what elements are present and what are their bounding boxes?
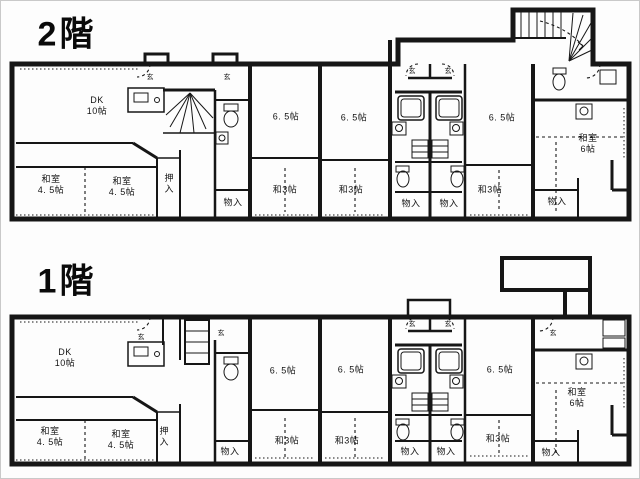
genkan-label-1f: 玄: [218, 330, 225, 338]
room-label-wa3-c-1f: 和3帖: [486, 434, 511, 445]
room-label-washitsu45-a-2f: 和室 4. 5帖: [38, 174, 65, 196]
storage-label-1f: 物入: [436, 447, 455, 458]
toilet-icon: [215, 340, 250, 464]
floorplan-image: 2階 DK 10帖 6. 5帖 6. 5帖 6. 5帖 和室 6帖 和室 4. …: [0, 0, 640, 479]
storage-label-1f: 物入: [400, 447, 419, 458]
storage-label-1f: 物入: [541, 448, 560, 459]
room-label-6.5-b-1f: 6. 5帖: [338, 365, 365, 376]
room-label-wa3-a-1f: 和3帖: [275, 436, 300, 447]
porch-canopy: [502, 258, 590, 317]
room-label-washitsu45-b-2f: 和室 4. 5帖: [109, 176, 136, 198]
genkan-label-2f: 玄: [147, 74, 154, 82]
genkan-label-1f: 玄: [409, 321, 416, 329]
storage-label-2f: 物入: [401, 199, 420, 210]
interior-stairs-icon: [163, 90, 215, 219]
room-label-dk-1f: DK 10帖: [55, 347, 76, 369]
interior-stairs-icon: [163, 317, 209, 364]
storage-label-2f: 物入: [439, 199, 458, 210]
balcony-icon: [145, 54, 168, 64]
closet-label-oshiire-1f: 押入: [159, 426, 168, 448]
genkan-label-1f: 玄: [445, 321, 452, 329]
genkan-label-2f: 玄: [409, 68, 416, 76]
genkan-label-1f: 玄: [138, 334, 145, 342]
room-label-washitsu45-a-1f: 和室 4. 5帖: [37, 426, 64, 448]
closet-label-oshiire-2f: 押入: [164, 173, 173, 195]
room-label-6.5-a-1f: 6. 5帖: [270, 366, 297, 377]
floor2-title: 2階: [38, 15, 97, 56]
genkan-label-1f: 玄: [550, 330, 557, 338]
room-label-6.5-c-2f: 6. 5帖: [489, 113, 516, 124]
floor1-linework: [12, 258, 629, 464]
kitchen-counter-icon: [128, 342, 164, 366]
kitchen-counter-icon: [128, 88, 164, 112]
room-label-6.5-b-2f: 6. 5帖: [341, 113, 368, 124]
room-label-washitsu6-1f: 和室 6帖: [567, 387, 586, 409]
right-unit-bathroom: [533, 317, 629, 369]
room-label-wa3-a-2f: 和3帖: [273, 185, 298, 196]
room-label-6.5-a-2f: 6. 5帖: [273, 112, 300, 123]
room-label-dk-2f: DK 10帖: [87, 95, 108, 117]
room-label-washitsu45-b-1f: 和室 4. 5帖: [108, 429, 135, 451]
genkan-label-2f: 玄: [445, 68, 452, 76]
storage-label-2f: 物入: [547, 197, 566, 208]
room-label-wa3-b-2f: 和3帖: [339, 185, 364, 196]
storage-label-1f: 物入: [220, 447, 239, 458]
bath-units: [392, 64, 464, 219]
floorplan-linework: [0, 0, 640, 479]
genkan-label-2f: 玄: [224, 74, 231, 82]
balcony-icon: [213, 54, 237, 64]
room-label-washitsu6-2f: 和室 6帖: [578, 133, 597, 155]
room-label-wa3-b-1f: 和3帖: [335, 436, 360, 447]
room-label-wa3-c-2f: 和3帖: [478, 185, 503, 196]
bath-units: [392, 317, 464, 464]
toilet-icon: [215, 100, 250, 144]
right-unit-bathroom: [533, 64, 629, 119]
room-label-6.5-c-1f: 6. 5帖: [487, 365, 514, 376]
exterior-stairs-icon: [513, 12, 594, 61]
floor1-title: 1階: [38, 262, 97, 303]
storage-label-2f: 物入: [223, 198, 242, 209]
